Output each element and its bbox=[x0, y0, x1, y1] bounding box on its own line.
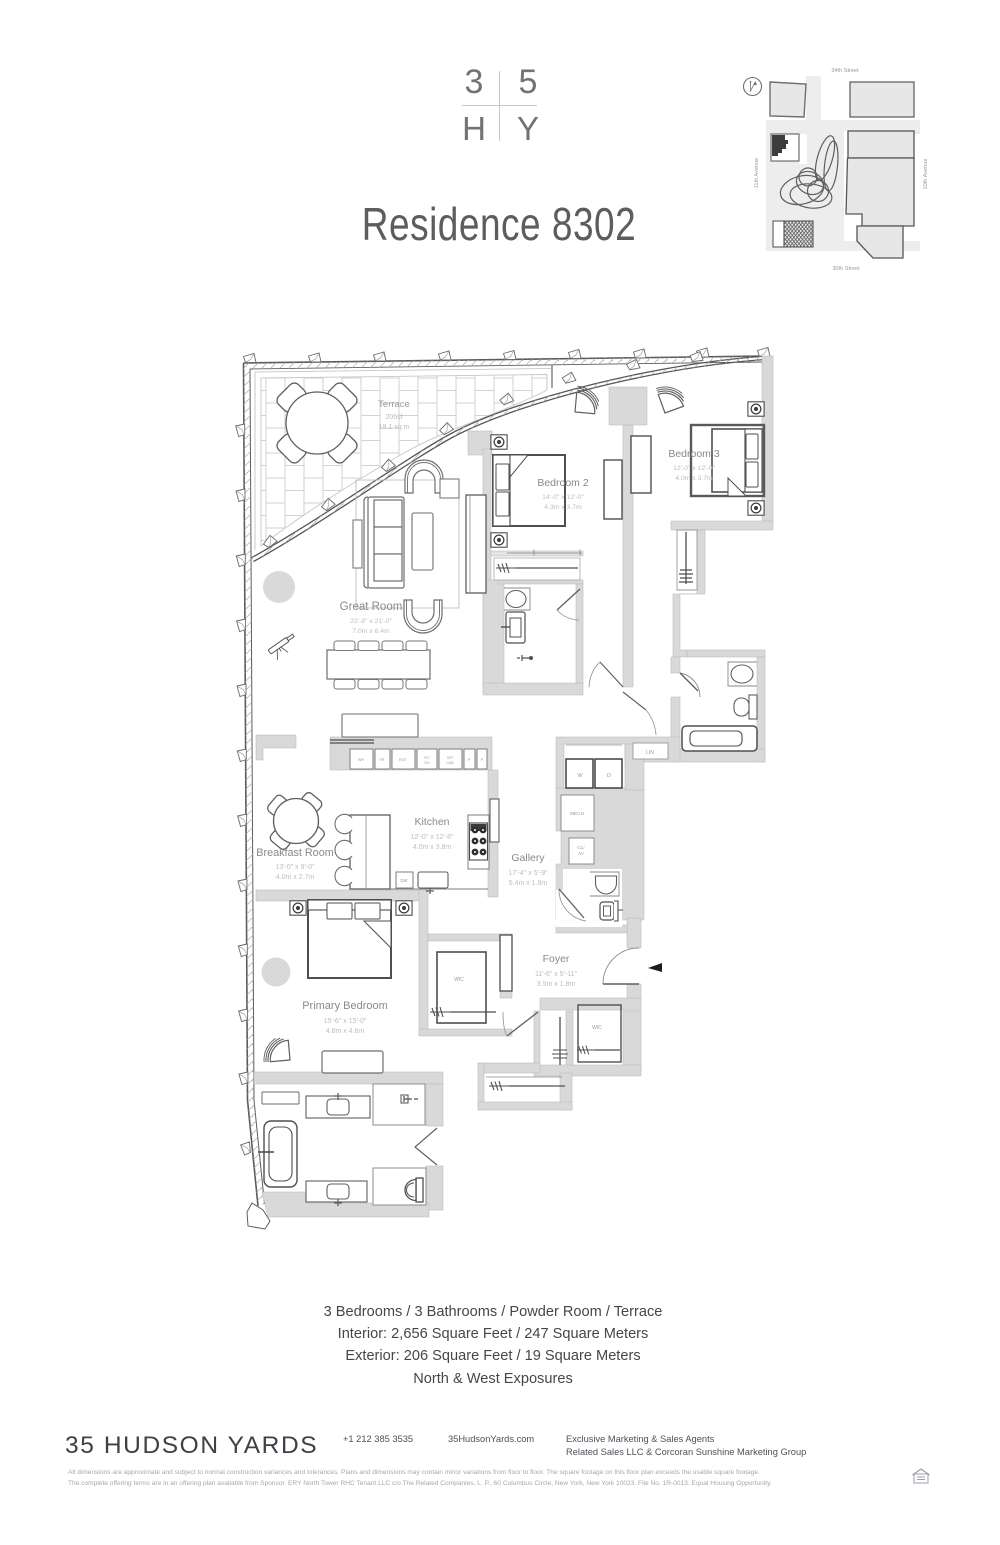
svg-text:10th Avenue: 10th Avenue bbox=[923, 158, 929, 189]
svg-text:RGT: RGT bbox=[399, 758, 408, 762]
svg-text:P: P bbox=[468, 758, 471, 762]
svg-text:WIC: WIC bbox=[454, 977, 464, 983]
svg-text:4.3m x 3.7m: 4.3m x 3.7m bbox=[544, 504, 582, 511]
svg-text:WR: WR bbox=[358, 758, 365, 762]
svg-text:206sf: 206sf bbox=[385, 414, 402, 421]
svg-text:17'-4" x 5'-9": 17'-4" x 5'-9" bbox=[508, 870, 548, 877]
svg-text:CL/: CL/ bbox=[577, 845, 585, 850]
svg-text:4.0m x 3.8m: 4.0m x 3.8m bbox=[413, 844, 452, 851]
svg-text:LIN: LIN bbox=[646, 750, 654, 756]
svg-text:7.0m x 6.4m: 7.0m x 6.4m bbox=[352, 628, 390, 635]
svg-text:DW: DW bbox=[401, 878, 408, 883]
svg-text:3.5m x 1.8m: 3.5m x 1.8m bbox=[537, 981, 576, 988]
svg-text:Bedroom 3: Bedroom 3 bbox=[668, 448, 720, 460]
svg-text:14'-0" x 12'-0": 14'-0" x 12'-0" bbox=[542, 494, 584, 501]
svg-text:Primary Bedroom: Primary Bedroom bbox=[302, 1000, 388, 1012]
svg-text:11'-6" x 5'-11": 11'-6" x 5'-11" bbox=[535, 971, 578, 978]
svg-text:5.4m x 1.8m: 5.4m x 1.8m bbox=[509, 880, 548, 887]
svg-text:Foyer: Foyer bbox=[543, 953, 570, 965]
svg-text:Gallery: Gallery bbox=[511, 852, 545, 864]
svg-text:Kitchen: Kitchen bbox=[414, 816, 449, 828]
svg-text:22'-8" x 21'-0": 22'-8" x 21'-0" bbox=[350, 618, 392, 625]
svg-text:19.1 sq.m: 19.1 sq.m bbox=[379, 424, 410, 431]
svg-text:P: P bbox=[481, 758, 484, 762]
svg-text:4.0m x 2.7m: 4.0m x 2.7m bbox=[276, 874, 315, 881]
svg-text:4.8m x 4.6m: 4.8m x 4.6m bbox=[326, 1028, 365, 1035]
svg-text:FR: FR bbox=[379, 758, 384, 762]
svg-text:Bedroom 2: Bedroom 2 bbox=[537, 477, 589, 489]
svg-text:ST/: ST/ bbox=[424, 756, 431, 760]
svg-text:W: W bbox=[577, 773, 583, 779]
svg-text:Terrace: Terrace bbox=[378, 399, 410, 410]
svg-text:Breakfast Room: Breakfast Room bbox=[256, 847, 333, 859]
svg-text:15'-6" x 15'-0": 15'-6" x 15'-0" bbox=[323, 1018, 367, 1025]
svg-text:34th Street: 34th Street bbox=[831, 68, 859, 74]
svg-text:30th Street: 30th Street bbox=[832, 266, 860, 272]
svg-text:4.0m x 3.7m: 4.0m x 3.7m bbox=[675, 475, 713, 482]
svg-text:12'-0" x 12'-0": 12'-0" x 12'-0" bbox=[673, 465, 715, 472]
svg-text:AV: AV bbox=[578, 851, 585, 856]
svg-text:OV: OV bbox=[424, 761, 430, 765]
svg-text:MECH: MECH bbox=[570, 811, 585, 817]
svg-text:11th Avenue: 11th Avenue bbox=[754, 158, 760, 189]
svg-text:D: D bbox=[607, 773, 611, 779]
svg-text:12'-0" x 12'-8": 12'-0" x 12'-8" bbox=[410, 834, 454, 841]
svg-text:WIC: WIC bbox=[592, 1025, 602, 1031]
svg-text:Great Room: Great Room bbox=[340, 601, 403, 613]
svg-text:13'-0" x 9'-0": 13'-0" x 9'-0" bbox=[275, 864, 315, 871]
svg-text:CAB: CAB bbox=[446, 761, 454, 765]
svg-text:SP/: SP/ bbox=[447, 756, 454, 760]
